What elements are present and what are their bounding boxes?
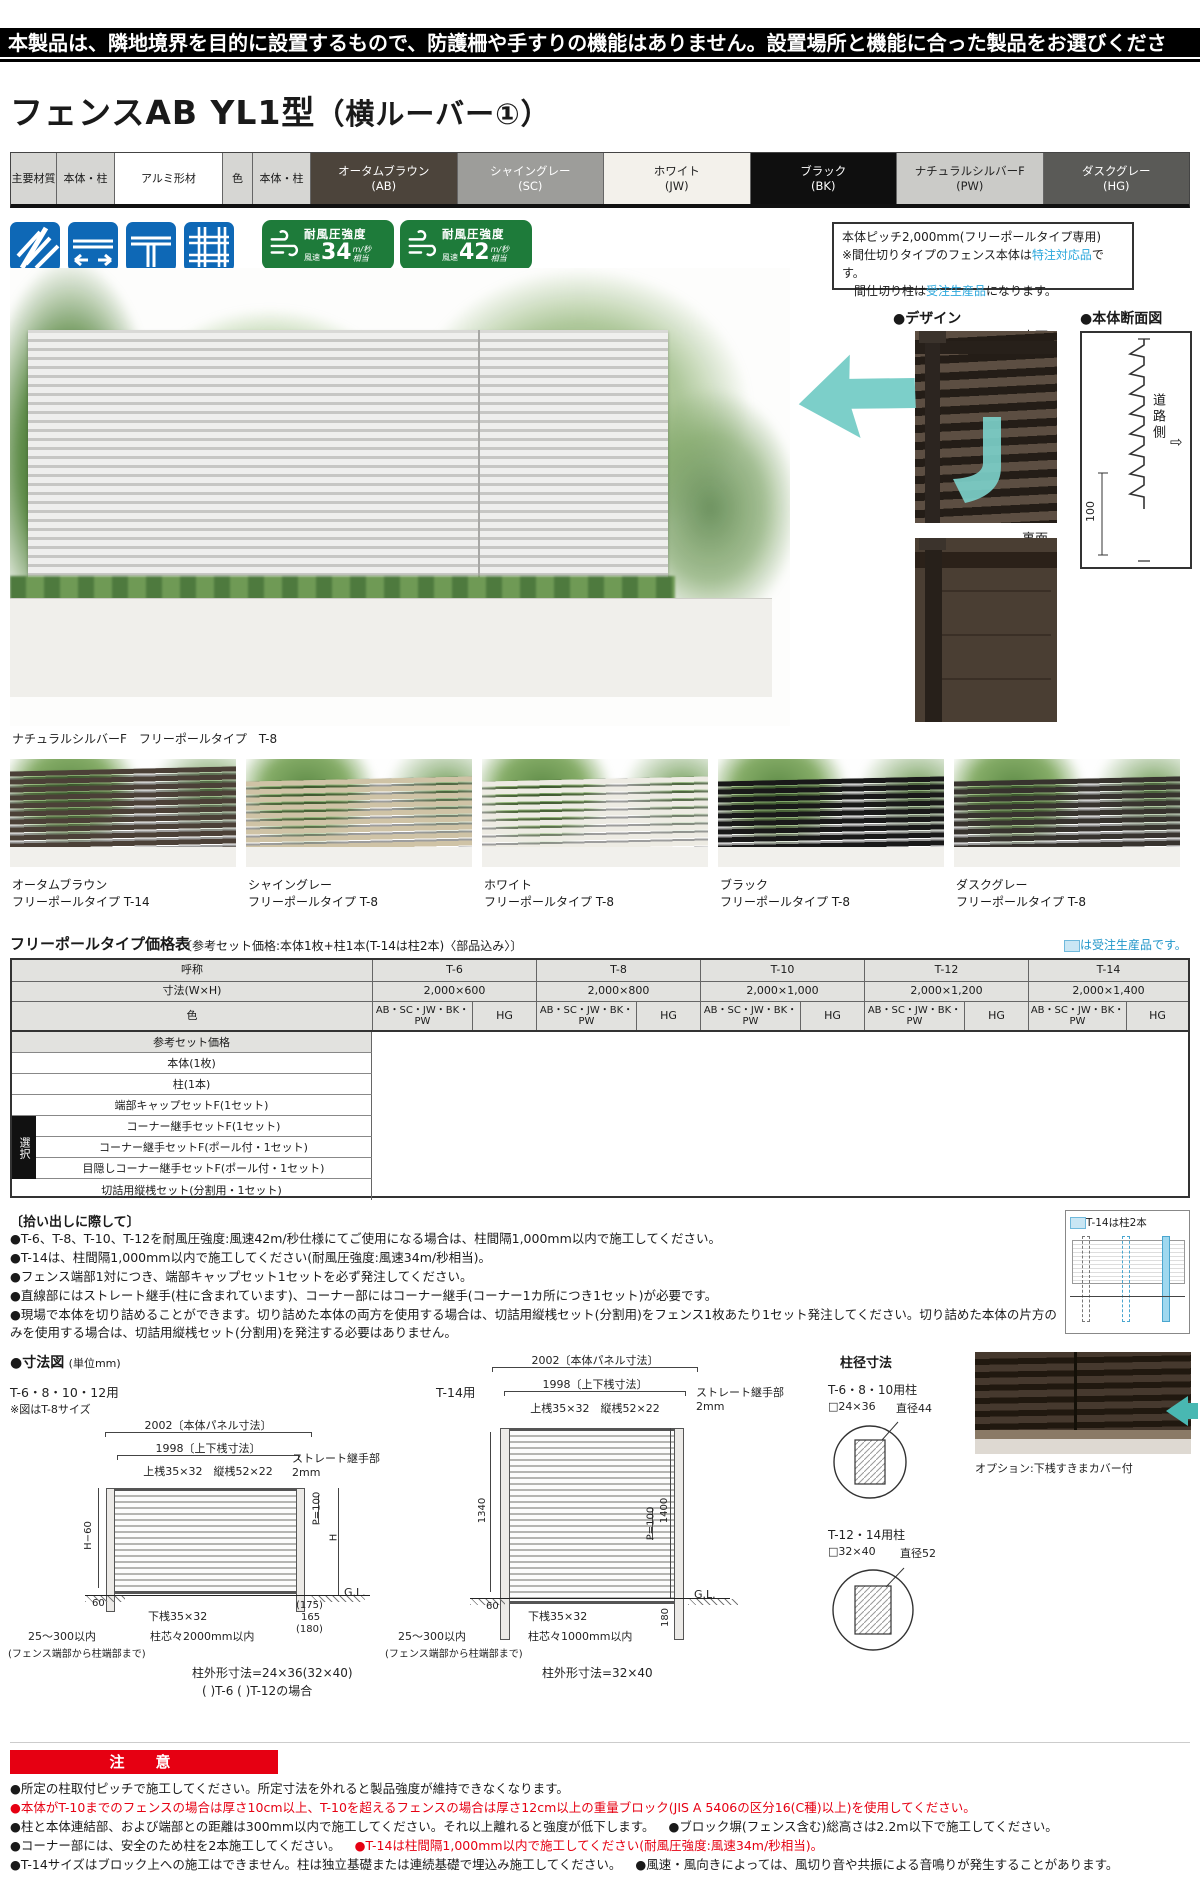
- embed-180: (180): [296, 1624, 323, 1635]
- info-text: ※間仕切りタイプのフェンス本体は: [842, 248, 1032, 262]
- joint-text: ストレート継手部: [696, 1386, 786, 1400]
- road-side-arrow: ⇨: [1170, 433, 1183, 451]
- caution-line-1: ●所定の柱取付ピッチで施工してください。所定寸法を外れると製品強度が維持できなく…: [10, 1780, 1190, 1798]
- main-photo-caption: ナチュラルシルバーF フリーポールタイプ T-8: [12, 730, 277, 747]
- caution-text: ●風速・風向きによっては、風切り音や共振による音鳴りが発生することがあります。: [635, 1857, 1118, 1872]
- left-fence-post: [296, 1488, 305, 1612]
- info-text: 本体ピッチ2,000mm(フリーポールタイプ専用): [842, 230, 1101, 244]
- size-t8: 2,000×800: [536, 982, 700, 1002]
- joint-text: 2mm: [292, 1466, 382, 1480]
- legend-text: は受注生産品です。: [1080, 938, 1187, 952]
- pitch-info-box: 本体ピッチ2,000mm(フリーポールタイプ専用) ※間仕切りタイプのフェンス本…: [832, 222, 1134, 290]
- dims-title: ●寸法図 (単位mm): [10, 1352, 121, 1372]
- dim-range-note-mid: (フェンス端部から柱端部まで): [385, 1645, 523, 1660]
- wind-icon: [268, 228, 300, 262]
- dim-180: 180: [660, 1608, 671, 1627]
- dim-1400: 1400: [659, 1498, 670, 1523]
- variant-photo-dusk-gray: [954, 759, 1180, 867]
- embed-165: 165: [301, 1612, 320, 1623]
- variant-name: オータムブラウン: [12, 876, 150, 893]
- variant-base-wall: [482, 847, 708, 867]
- col-t6: T-6: [372, 960, 536, 982]
- dim-line: [490, 1432, 491, 1592]
- color-code: (HG): [1103, 179, 1130, 193]
- post1-circle-diagram: [828, 1418, 912, 1502]
- color-code: (AB): [371, 179, 396, 193]
- variant-photo-autumn-brown: [10, 759, 236, 867]
- size-t12: 2,000×1,200: [864, 982, 1028, 1002]
- info-line-3: 間仕切り柱は受注生産品になります。: [842, 282, 1124, 300]
- caution-line-2: ●本体がT-10までのフェンスの場合は厚さ10cm以上、T-10を超えるフェンス…: [10, 1799, 1190, 1817]
- size-t10: 2,000×1,000: [700, 982, 864, 1002]
- variant-caption-3: ホワイトフリーポールタイプ T-8: [484, 876, 614, 910]
- post1-dia: 直径44: [896, 1400, 932, 1416]
- caution-text: ●柱と本体連結部、および端部との距離は300mm以内で施工してください。それ以上…: [10, 1819, 655, 1834]
- variant-caption-5: ダスクグレーフリーポールタイプ T-8: [956, 876, 1086, 910]
- caution-line-4: ●コーナー部には、安全のため柱を2本施工してください。 ●T-14は柱間隔1,0…: [10, 1837, 1190, 1855]
- color-swatch-autumn-brown: オータムブラウン(AB): [311, 153, 458, 204]
- variant-fence: [246, 776, 472, 851]
- dims-mid-heading: T-14用: [436, 1382, 475, 1401]
- color-swatch-white: ホワイト(JW): [604, 153, 751, 204]
- size-t6: 2,000×600: [372, 982, 536, 1002]
- dim-mid-joint: ストレート継手部2mm: [696, 1386, 786, 1415]
- gap-cover-rail: [975, 1430, 1191, 1439]
- info-text-em: 受注生産品: [926, 284, 986, 298]
- pickup-title: 〔拾い出しに際して〕: [10, 1211, 140, 1230]
- price-body: 参考セット価格 本体(1枚) 柱(1本) 端部キャップセットF(1セット) コー…: [12, 1032, 1188, 1200]
- wind-icon: [406, 228, 438, 262]
- row-corner-joint: コーナー継手セットF(1セット): [36, 1116, 372, 1137]
- panel-line: [941, 678, 1051, 680]
- size-t14: 2,000×1,400: [1028, 982, 1188, 1002]
- section-view-box: 道路側 ⇨ 100: [1080, 331, 1192, 569]
- info-text-em: 特注対応品: [1032, 248, 1092, 262]
- color-code: (PW): [956, 179, 983, 193]
- design-front-photo: [915, 331, 1057, 523]
- dim-post-size-mid: 柱外形寸法=32×40: [542, 1664, 653, 1681]
- variant-base-wall: [954, 847, 1180, 867]
- dim-bracket: [117, 1455, 299, 1460]
- left-fence-post: [106, 1488, 115, 1612]
- dim-mid-rails: 1998〔上下桟寸法〕: [505, 1376, 685, 1392]
- color-name: ホワイト: [654, 164, 700, 178]
- caution-text: ●ブロック塀(フェンス含む)総高さは2.2m以下で施工してください。: [668, 1819, 1057, 1834]
- info-text: 間仕切り柱は: [854, 284, 926, 298]
- dim-p100-mid: P=100: [645, 1507, 656, 1541]
- select-label: 選択: [12, 1116, 36, 1179]
- post2-circle-diagram: [828, 1563, 918, 1653]
- joint-text: 2mm: [696, 1400, 786, 1414]
- dim-pitch: 柱芯々2000mm以内: [150, 1628, 254, 1644]
- partition-icon: [126, 222, 176, 272]
- variant-base-wall: [718, 847, 944, 867]
- option-arrow-tail: [1188, 1403, 1198, 1419]
- variant-name: ホワイト: [484, 876, 614, 893]
- gl-label-mid: G.L.: [694, 1588, 716, 1601]
- multi-tier-icon: [184, 222, 234, 272]
- row-corner-joint-pole: コーナー継手セットF(ポール付・1セット): [36, 1137, 372, 1158]
- price-header-row: 呼称 T-6 T-8 T-10 T-12 T-14: [12, 960, 1188, 982]
- t14-box-label: T-14は柱2本: [1070, 1215, 1185, 1230]
- pickup-item-3: ●フェンス端部1対につき、端部キャップセット1セットを必ず発注してください。: [10, 1268, 1058, 1286]
- pickup-item-2: ●T-14は、柱間隔1,000mm以内で施工してください(耐風圧強度:風速34m…: [10, 1249, 1058, 1267]
- variant-photo-shine-gray: [246, 759, 472, 867]
- t14-diagram: [1070, 1234, 1185, 1326]
- dim-bottom-rail: 下桟35×32: [148, 1608, 207, 1624]
- color-swatch-dusk-gray: ダスクグレー(HG): [1044, 153, 1190, 204]
- color-code: (BK): [811, 179, 835, 193]
- wind-badge-34: 耐風圧強度 風速 34 m/秒相当: [262, 220, 394, 270]
- pickup-item-1: ●T-6、T-8、T-10、T-12を耐風圧強度:風速42m/秒仕様にてご使用に…: [10, 1230, 1058, 1248]
- option-caption: オプション:下桟すきまカバー付: [975, 1460, 1133, 1476]
- row-cut-rail-set: 切詰用縦桟セット(分割用・1セット): [12, 1179, 372, 1200]
- dim-60: 60: [92, 1598, 105, 1609]
- dim-mid-toprail: 上桟35×32 縦桟52×22: [505, 1400, 685, 1416]
- variant-type: フリーポールタイプ T-8: [956, 893, 1086, 910]
- road-side-label: 道路側: [1148, 393, 1167, 441]
- dims-unit: (単位mm): [69, 1357, 121, 1370]
- group-b: HG: [800, 1002, 864, 1030]
- base: [975, 1439, 1191, 1454]
- wind-value: 42: [459, 242, 490, 264]
- post-solid-blue: [1162, 1236, 1170, 1322]
- top-warning-banner: 本製品は、隣地境界を目的に設置するもので、防護柵や手すりの機能はありません。設置…: [0, 28, 1200, 62]
- color-swatch-shine-gray: シャイングレー(SC): [458, 153, 605, 204]
- grass-strip: [10, 576, 675, 600]
- dim-bracket: [504, 1391, 686, 1396]
- size-header: 寸法(W×H): [12, 982, 372, 1002]
- variant-type: フリーポールタイプ T-8: [248, 893, 378, 910]
- color-name: オータムブラウン: [338, 164, 429, 178]
- price-table: 呼称 T-6 T-8 T-10 T-12 T-14 寸法(W×H) 2,000×…: [10, 958, 1190, 1198]
- embed-175: (175): [296, 1600, 323, 1611]
- variant-type: フリーポールタイプ T-8: [484, 893, 614, 910]
- price-table-subtitle: 〔参考セット価格:本体1枚+柱1本(T-14は柱2本)〈部品込み〉〕: [180, 937, 522, 954]
- group-a: AB・SC・JW・BK・PW: [1028, 1002, 1126, 1030]
- color-code: (SC): [518, 179, 542, 193]
- color-code: (JW): [665, 179, 689, 193]
- pickup-item-5: ●現場で本体を切り詰めることができます。切り詰めた本体の両方を使用する場合は、切…: [10, 1306, 1058, 1342]
- col-t12: T-12: [864, 960, 1028, 982]
- variant-base-wall: [246, 847, 472, 867]
- dim-h-minus-60: H−60: [83, 1521, 94, 1550]
- dim-bracket: [492, 1367, 698, 1372]
- wind-unit2: 相当: [491, 255, 510, 264]
- caution-line-3: ●柱と本体連結部、および端部との距離は300mm以内で施工してください。それ以上…: [10, 1818, 1190, 1836]
- caution-divider: [10, 1742, 1190, 1743]
- spec-scope2: 本体・柱: [253, 153, 311, 204]
- dim-left-rails: 1998〔上下桟寸法〕: [118, 1440, 298, 1456]
- wind-speed-label: 風速: [304, 254, 320, 262]
- dim-line: [98, 1488, 99, 1588]
- banner-underline: [0, 57, 1200, 59]
- dim-p100: P=100: [311, 1492, 322, 1526]
- dim-bottom-rail-mid: 下桟35×32: [528, 1608, 587, 1624]
- panel-line: [941, 590, 1051, 592]
- group-b: HG: [1126, 1002, 1188, 1030]
- price-color-row: 色 AB・SC・JW・BK・PW HG AB・SC・JW・BK・PW HG AB…: [12, 1002, 1188, 1032]
- post2-dia: 直径52: [900, 1545, 936, 1561]
- variant-fence: [10, 766, 236, 853]
- fence-post: [925, 331, 940, 523]
- design-title: ●デザイン: [893, 308, 961, 328]
- silver-louver-fence: [28, 330, 668, 585]
- post1-label: T-6・8・10用柱: [828, 1381, 917, 1398]
- variant-fence: [954, 776, 1180, 851]
- t14-two-post-box: T-14は柱2本: [1065, 1210, 1190, 1334]
- design-back-photo: [915, 538, 1057, 722]
- color-header: 色: [12, 1002, 372, 1030]
- dim-post-size: 柱外形寸法=24×36(32×40): [192, 1664, 353, 1681]
- catalog-page: 本製品は、隣地境界を目的に設置するもので、防護柵や手すりの機能はありません。設置…: [0, 0, 1200, 1904]
- caution-text-red: ●T-14は柱間隔1,000mm以内で施工してください(耐風圧強度:風速34m/…: [355, 1838, 823, 1853]
- dim-1340: 1340: [477, 1498, 488, 1523]
- variant-fence: [482, 776, 708, 851]
- variant-name: シャイングレー: [248, 876, 378, 893]
- dim-h: H: [328, 1534, 339, 1542]
- dim-mid-panel: 2002〔本体パネル寸法〕: [495, 1352, 695, 1368]
- variant-caption-1: オータムブラウンフリーポールタイプ T-14: [12, 876, 150, 910]
- dim-pitch-mid: 柱芯々1000mm以内: [528, 1628, 632, 1644]
- caution-banner: 注 意: [10, 1750, 278, 1774]
- group-a: AB・SC・JW・BK・PW: [864, 1002, 964, 1030]
- variant-caption-4: ブラックフリーポールタイプ T-8: [720, 876, 850, 910]
- col-t8: T-8: [536, 960, 700, 982]
- color-swatch-natural-silver: ナチュラルシルバーF(PW): [897, 153, 1044, 204]
- section-dim-100: 100: [1084, 501, 1097, 522]
- dim-bracket: [105, 1432, 312, 1437]
- airflow-ribbon: [953, 417, 1015, 517]
- dim-left-toprail: 上桟35×32 縦桟52×22: [118, 1463, 298, 1479]
- ground-line: [1070, 1296, 1185, 1297]
- col-t14: T-14: [1028, 960, 1188, 982]
- wind-unit2: 相当: [353, 255, 372, 264]
- row-body: 本体(1枚): [12, 1053, 372, 1074]
- dim-left-panel: 2002〔本体パネル寸法〕: [108, 1417, 308, 1433]
- free-pole-icon: [68, 222, 118, 272]
- row-screen-corner-joint: 目隠しコーナー継手セットF(ポール付・1セット): [36, 1158, 372, 1179]
- page-title: フェンスAB YL1型（横ルーバー①）: [10, 86, 551, 134]
- caution-text: ●コーナー部には、安全のため柱を2本施工してください。: [10, 1838, 341, 1853]
- left-fence-panel: [112, 1488, 304, 1594]
- caution-text: ●T-14サイズはブロック上への施工はできません。柱は独立基礎または連続基礎で埋…: [10, 1857, 621, 1872]
- spec-color-table: 主要材質 本体・柱 アルミ形材 色 本体・柱 オータムブラウン(AB) シャイン…: [10, 152, 1190, 208]
- panel-line: [941, 634, 1051, 636]
- dims-title-text: ●寸法図: [10, 1355, 64, 1371]
- group-b: HG: [636, 1002, 700, 1030]
- color-name: シャイングレー: [490, 164, 571, 178]
- post2-size: □32×40: [828, 1545, 876, 1558]
- main-product-photo: [10, 268, 790, 726]
- spec-color-header: 色: [223, 153, 253, 204]
- base-wall: [10, 598, 772, 697]
- page-title-sub: （横ルーバー①）: [315, 97, 550, 131]
- group-a: AB・SC・JW・BK・PW: [700, 1002, 800, 1030]
- option-arrow: [1166, 1396, 1188, 1426]
- airflow-arrow: [798, 348, 918, 440]
- row-end-cap: 端部キャップセットF(1セット): [12, 1095, 372, 1116]
- dim-60-mid: 60: [486, 1601, 499, 1612]
- dim-range-note: (フェンス端部から柱端部まで): [8, 1645, 146, 1660]
- group-b: HG: [964, 1002, 1028, 1030]
- color-name: ナチュラルシルバーF: [915, 164, 1025, 178]
- variant-caption-2: シャイングレーフリーポールタイプ T-8: [248, 876, 378, 910]
- pickup-item-4: ●直線部にはストレート継手(柱に含まれています)、コーナー部にはコーナー継手(コ…: [10, 1287, 1058, 1305]
- joint-text: ストレート継手部: [292, 1452, 382, 1466]
- group-a: AB・SC・JW・BK・PW: [536, 1002, 636, 1030]
- gl-label: G.L.: [344, 1586, 366, 1599]
- spec-material: アルミ形材: [115, 153, 223, 204]
- dims-left-heading: T-6・8・10・12用: [10, 1382, 119, 1401]
- col-t10: T-10: [700, 960, 864, 982]
- color-name: ダスクグレー: [1082, 164, 1151, 178]
- post-cap: [919, 538, 946, 550]
- row-set-price: 参考セット価格: [12, 1032, 372, 1053]
- spec-material-header: 主要材質: [11, 153, 57, 204]
- dim-post-size-2: ( )T-6 ( )T-12の場合: [202, 1682, 312, 1699]
- variant-type: フリーポールタイプ T-14: [12, 893, 150, 910]
- variant-photo-black: [718, 759, 944, 867]
- made-to-order-swatch: [1064, 940, 1080, 952]
- caution-line-5: ●T-14サイズはブロック上への施工はできません。柱は独立基礎または連続基礎で埋…: [10, 1856, 1190, 1874]
- t14-box-text: T-14は柱2本: [1086, 1217, 1147, 1229]
- post-cap: [919, 331, 946, 343]
- post1-size: □24×36: [828, 1400, 876, 1413]
- info-text: になります。: [986, 284, 1057, 298]
- group-a: AB・SC・JW・BK・PW: [372, 1002, 472, 1030]
- fence-post: [925, 538, 942, 722]
- fence-panel-joint: [478, 330, 480, 582]
- color-swatch-black: ブラック(BK): [751, 153, 898, 204]
- one-side-pattern-icon: [10, 222, 60, 272]
- post-dia-title: 柱径寸法: [840, 1352, 892, 1371]
- dim-left-joint: ストレート継手部2mm: [292, 1452, 382, 1481]
- color-name: ブラック: [800, 164, 846, 178]
- info-line-1: 本体ピッチ2,000mm(フリーポールタイプ専用): [842, 228, 1124, 246]
- wind-speed-label: 風速: [442, 254, 458, 262]
- dims-left-note: ※図はT-8サイズ: [10, 1401, 91, 1417]
- group-b: HG: [472, 1002, 536, 1030]
- dim-line: [338, 1488, 339, 1595]
- wind-badge-42: 耐風圧強度 風速 42 m/秒相当: [400, 220, 532, 270]
- price-legend: は受注生産品です。: [1064, 936, 1187, 953]
- col-name-header: 呼称: [12, 960, 372, 982]
- post-dashed-blue: [1122, 1236, 1130, 1322]
- post-dashed-gray: [1082, 1236, 1090, 1322]
- row-post: 柱(1本): [12, 1074, 372, 1095]
- variant-type: フリーポールタイプ T-8: [720, 893, 850, 910]
- dim-range-mid: 25～300以内: [398, 1628, 466, 1644]
- section-view-title: ●本体断面図: [1080, 308, 1162, 328]
- made-to-order-swatch: [1070, 1217, 1086, 1229]
- option-photo: [975, 1352, 1191, 1454]
- variant-photo-white: [482, 759, 708, 867]
- price-size-row: 寸法(W×H) 2,000×600 2,000×800 2,000×1,000 …: [12, 982, 1188, 1002]
- post2-label: T-12・14用柱: [828, 1526, 905, 1543]
- variant-name: ダスクグレー: [956, 876, 1086, 893]
- variant-fence: [718, 776, 944, 851]
- mid-fence-post: [674, 1428, 684, 1640]
- mid-fence-post: [500, 1428, 510, 1640]
- variant-base-wall: [10, 847, 236, 867]
- spec-scope1: 本体・柱: [57, 153, 115, 204]
- wind-value: 34: [321, 242, 352, 264]
- variant-name: ブラック: [720, 876, 850, 893]
- page-title-main: フェンスAB YL1型: [10, 93, 315, 132]
- ground-hatch: [85, 1596, 125, 1602]
- dim-range: 25～300以内: [28, 1628, 96, 1644]
- price-table-title: フリーポールタイプ価格表: [10, 933, 190, 954]
- info-line-2: ※間仕切りタイプのフェンス本体は特注対応品です。: [842, 246, 1124, 282]
